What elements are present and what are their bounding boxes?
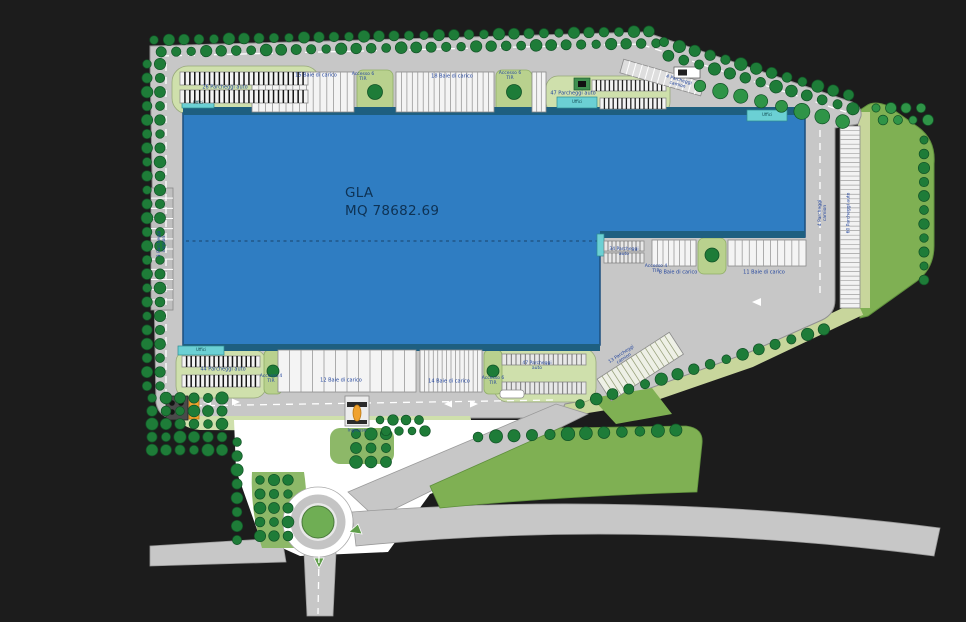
parking-44-row-b bbox=[182, 375, 260, 387]
truck-gate-sign bbox=[674, 67, 700, 78]
tree-icon bbox=[584, 27, 595, 38]
tree-icon bbox=[142, 227, 152, 237]
truck-icon bbox=[678, 70, 687, 76]
tree-icon bbox=[161, 432, 170, 441]
tree-icon bbox=[901, 103, 911, 113]
tree-icon bbox=[155, 143, 165, 153]
tree-icon bbox=[395, 427, 404, 436]
tree-icon bbox=[920, 234, 929, 243]
tree-icon bbox=[388, 415, 399, 426]
tree-icon bbox=[175, 445, 185, 455]
tree-icon bbox=[381, 457, 392, 468]
tree-icon bbox=[670, 424, 683, 437]
tree-icon bbox=[203, 393, 212, 402]
tree-icon bbox=[231, 464, 243, 476]
tree-icon bbox=[420, 426, 431, 437]
tree-icon bbox=[233, 438, 242, 447]
tree-icon bbox=[254, 33, 264, 43]
tree-icon bbox=[203, 432, 214, 443]
tree-icon bbox=[350, 456, 363, 469]
tree-icon bbox=[479, 30, 488, 39]
tree-icon bbox=[366, 43, 376, 53]
tree-icon bbox=[146, 418, 158, 430]
tree-icon bbox=[176, 407, 185, 416]
tree-icon bbox=[142, 143, 153, 154]
tree-icon bbox=[284, 490, 293, 499]
tree-icon bbox=[420, 31, 429, 40]
tree-icon bbox=[188, 405, 200, 417]
tree-icon bbox=[217, 432, 227, 442]
tree-icon bbox=[187, 47, 196, 56]
tree-icon bbox=[546, 39, 557, 50]
tree-icon bbox=[143, 312, 152, 321]
tree-icon bbox=[464, 30, 474, 40]
main-gate bbox=[345, 396, 369, 426]
stripes-bg bbox=[600, 98, 666, 109]
tree-icon bbox=[161, 445, 172, 456]
tree-icon bbox=[283, 475, 294, 486]
tree-icon bbox=[486, 41, 497, 52]
tree-icon bbox=[216, 392, 228, 404]
stripes-bg bbox=[532, 72, 546, 112]
tree-icon bbox=[382, 43, 391, 52]
barrier-icon bbox=[353, 405, 361, 421]
tree-icon bbox=[141, 338, 153, 350]
tree-icon bbox=[247, 46, 256, 55]
gate-box-glyph bbox=[578, 81, 586, 87]
tree-icon bbox=[329, 32, 339, 42]
tree-icon bbox=[256, 476, 265, 485]
tree-icon bbox=[231, 492, 243, 504]
dock-row-small-top bbox=[532, 72, 546, 112]
parking-47-top-row-b bbox=[600, 98, 666, 109]
tree-icon bbox=[155, 115, 166, 126]
tree-icon bbox=[155, 73, 164, 82]
label-parking-26: 26 Parcheggi auto bbox=[202, 85, 247, 91]
tree-icon bbox=[155, 339, 166, 350]
building-label-area: MQ 78682.69 bbox=[345, 202, 439, 220]
tree-icon bbox=[204, 420, 213, 429]
label-dock-14: 14 Baie di carico bbox=[428, 379, 470, 385]
canopy-south-east bbox=[600, 231, 805, 238]
tree-icon bbox=[141, 212, 153, 224]
tree-icon bbox=[408, 427, 416, 435]
tree-icon bbox=[156, 102, 165, 111]
tree-icon bbox=[441, 42, 451, 52]
tree-icon bbox=[449, 29, 460, 40]
tree-icon bbox=[365, 428, 377, 440]
tree-icon bbox=[231, 46, 241, 56]
tree-icon bbox=[298, 32, 310, 44]
tree-icon bbox=[203, 406, 214, 417]
office-block-5 bbox=[597, 234, 604, 256]
tree-icon bbox=[142, 381, 151, 390]
tree-icon bbox=[373, 30, 384, 41]
tree-icon bbox=[179, 34, 190, 45]
tree-icon bbox=[916, 103, 925, 112]
tree-icon bbox=[291, 44, 301, 54]
tree-icon bbox=[561, 40, 571, 50]
tree-icon bbox=[202, 444, 214, 456]
tree-icon bbox=[142, 101, 152, 111]
tree-icon bbox=[223, 33, 235, 45]
tree-icon bbox=[923, 115, 934, 126]
tree-icon bbox=[415, 416, 424, 425]
tree-icon bbox=[473, 432, 483, 442]
tree-icon bbox=[651, 424, 665, 438]
tree-icon bbox=[919, 191, 930, 202]
tree-icon bbox=[175, 419, 186, 430]
tree-icon bbox=[260, 44, 272, 56]
label-uffici-4: Uffici bbox=[196, 348, 206, 352]
tree-icon bbox=[155, 269, 165, 279]
tree-icon bbox=[539, 28, 549, 38]
tree-icon bbox=[886, 103, 897, 114]
tree-icon bbox=[351, 43, 362, 54]
tree-icon bbox=[306, 44, 316, 54]
tree-icon bbox=[155, 367, 166, 378]
tree-icon bbox=[142, 269, 153, 280]
label-uffici-1: Uffici bbox=[193, 101, 203, 105]
tree-icon bbox=[470, 41, 482, 53]
tree-icon bbox=[147, 406, 158, 417]
tree-icon bbox=[705, 248, 719, 262]
tree-icon bbox=[232, 507, 242, 517]
road-sign bbox=[500, 390, 524, 398]
tree-icon bbox=[404, 31, 414, 41]
tree-icon bbox=[156, 382, 165, 391]
tree-icon bbox=[171, 47, 181, 57]
tree-icon bbox=[314, 32, 325, 43]
tree-icon bbox=[579, 427, 592, 440]
tree-icon bbox=[894, 116, 903, 125]
tree-icon bbox=[507, 85, 522, 100]
tree-icon bbox=[254, 502, 266, 514]
tree-icon bbox=[508, 28, 519, 39]
tree-icon bbox=[285, 33, 294, 42]
tree-icon bbox=[283, 531, 293, 541]
tree-icon bbox=[150, 36, 159, 45]
site-plan: 26 Parcheggi auto 15 Baie di carico Acce… bbox=[0, 0, 966, 622]
tree-icon bbox=[188, 431, 199, 442]
tree-icon bbox=[255, 517, 265, 527]
tree-icon bbox=[146, 444, 158, 456]
gate-box-top bbox=[574, 78, 590, 90]
tree-icon bbox=[628, 26, 640, 38]
label-ingresso: Ingresso bbox=[348, 430, 367, 435]
tree-icon bbox=[919, 219, 930, 230]
tree-icon bbox=[141, 366, 152, 377]
tree-icon bbox=[154, 282, 166, 294]
tree-icon bbox=[389, 31, 399, 41]
tree-icon bbox=[919, 177, 928, 186]
parking-26-row-a bbox=[180, 72, 308, 85]
label-access-6-tir-2: Accesso 6 TIR bbox=[495, 71, 525, 81]
tree-icon bbox=[209, 34, 218, 43]
tree-icon bbox=[530, 39, 542, 51]
tree-icon bbox=[143, 186, 152, 195]
tree-icon bbox=[635, 426, 645, 436]
tree-icon bbox=[599, 27, 609, 37]
tree-icon bbox=[489, 430, 503, 444]
label-dock-8: 8 Baie di carico bbox=[659, 270, 698, 276]
tree-icon bbox=[141, 86, 153, 98]
tree-icon bbox=[232, 535, 241, 544]
tree-icon bbox=[155, 171, 165, 181]
tree-icon bbox=[231, 520, 242, 531]
tree-icon bbox=[381, 426, 390, 435]
tree-icon bbox=[878, 115, 888, 125]
tree-icon bbox=[154, 58, 165, 69]
tree-icon bbox=[148, 394, 157, 403]
stripes-bg bbox=[182, 375, 260, 387]
tree-cluster-roundabout-west bbox=[254, 474, 294, 541]
tree-icon bbox=[501, 41, 511, 51]
label-access-4-tir-bottom: Accesso 4 TIR bbox=[256, 374, 286, 384]
tree-icon bbox=[276, 44, 287, 55]
tree-icon bbox=[918, 162, 929, 173]
tree-icon bbox=[368, 85, 383, 100]
tree-icon bbox=[156, 47, 166, 57]
label-parking-4-camion-right: 4 Parcheggi camion bbox=[818, 191, 828, 235]
tree-icon bbox=[376, 416, 384, 424]
tree-icon bbox=[919, 275, 929, 285]
tree-icon bbox=[401, 415, 411, 425]
tree-icon bbox=[216, 444, 227, 455]
label-parking-34: 34 Parcheggi auto bbox=[609, 247, 639, 257]
tree-icon bbox=[161, 406, 171, 416]
tree-icon bbox=[269, 531, 280, 542]
tree-icon bbox=[143, 60, 152, 69]
tree-icon bbox=[524, 28, 534, 38]
tree-icon bbox=[238, 33, 249, 44]
tree-icon bbox=[255, 489, 265, 499]
tree-icon bbox=[605, 38, 617, 50]
tree-icon bbox=[643, 26, 654, 37]
tree-icon bbox=[142, 129, 151, 138]
tree-icon bbox=[920, 206, 929, 215]
label-uffici-2: Uffici bbox=[572, 100, 582, 104]
tree-icon bbox=[143, 158, 152, 167]
label-dock-15: 15 Baie di carico bbox=[295, 73, 337, 79]
label-parking-60: 60 Parcheggi auto bbox=[846, 191, 851, 235]
label-dock-12: 12 Baie di carico bbox=[320, 378, 362, 384]
tree-icon bbox=[232, 479, 242, 489]
tree-icon bbox=[160, 418, 171, 429]
tree-icon bbox=[411, 42, 422, 53]
tree-icon bbox=[395, 42, 407, 54]
tree-icon bbox=[156, 130, 165, 139]
tree-icon bbox=[493, 28, 505, 40]
tree-icon bbox=[155, 325, 164, 334]
label-access-6-tir-1: Accesso 6 TIR bbox=[348, 72, 378, 82]
tree-icon bbox=[142, 171, 153, 182]
tree-icon bbox=[576, 40, 586, 50]
tree-icon bbox=[217, 406, 227, 416]
tree-icon bbox=[216, 45, 227, 56]
tree-icon bbox=[155, 87, 166, 98]
tree-icon bbox=[282, 516, 294, 528]
tree-icon bbox=[268, 474, 279, 485]
tree-icon bbox=[141, 240, 152, 251]
tree-icon bbox=[598, 427, 610, 439]
dock-row-11 bbox=[728, 240, 806, 266]
tree-icon bbox=[156, 354, 165, 363]
tree-icon bbox=[920, 262, 928, 270]
tree-icon bbox=[216, 418, 228, 430]
tree-icon bbox=[592, 40, 601, 49]
tree-icon bbox=[358, 30, 370, 42]
label-access-6-tir-bottom: Accesso 6 TIR bbox=[478, 376, 508, 386]
roundabout-center-green bbox=[302, 506, 334, 538]
label-dock-18: 18 Baie di carico bbox=[431, 74, 473, 80]
tree-icon bbox=[142, 297, 153, 308]
tree-icon bbox=[142, 73, 152, 83]
tree-icon bbox=[160, 392, 172, 404]
tree-icon bbox=[194, 34, 204, 44]
tree-icon bbox=[616, 426, 627, 437]
tree-icon bbox=[147, 432, 157, 442]
tree-icon bbox=[189, 445, 198, 454]
tree-icon bbox=[526, 429, 538, 441]
label-parking-3-camion: 3 Parcheggi camion bbox=[157, 222, 167, 266]
dock-row-8 bbox=[652, 240, 696, 266]
tree-icon bbox=[909, 116, 917, 124]
tree-icon bbox=[142, 255, 151, 264]
tree-icon bbox=[365, 456, 377, 468]
tree-icon bbox=[920, 136, 928, 144]
tree-icon bbox=[155, 297, 165, 307]
tree-icon bbox=[142, 353, 152, 363]
tree-icon bbox=[154, 310, 165, 321]
tree-icon bbox=[269, 33, 279, 43]
tree-icon bbox=[508, 429, 521, 442]
building-label: GLA MQ 78682.69 bbox=[345, 184, 439, 220]
label-uffici-3: Uffici bbox=[762, 113, 772, 117]
tree-icon bbox=[568, 27, 580, 39]
label-parking-47-top: 47 Parcheggi auto bbox=[550, 91, 595, 97]
tree-icon bbox=[636, 39, 646, 49]
tree-icon bbox=[381, 443, 390, 452]
label-parking-47-bottom: 47 Parcheggi auto bbox=[519, 361, 555, 371]
tree-icon bbox=[189, 393, 199, 403]
tree-icon bbox=[555, 29, 564, 38]
tree-icon bbox=[344, 32, 353, 41]
tree-icon bbox=[154, 156, 166, 168]
tree-icon bbox=[433, 29, 445, 41]
tree-icon bbox=[872, 104, 880, 112]
dock-row-12 bbox=[278, 350, 416, 392]
tree-icon bbox=[283, 503, 293, 513]
tree-icon bbox=[189, 419, 199, 429]
tree-icon bbox=[270, 518, 279, 527]
tree-icon bbox=[269, 503, 280, 514]
tree-icon bbox=[517, 41, 526, 50]
tree-icon bbox=[322, 45, 331, 54]
tree-icon bbox=[621, 38, 632, 49]
tree-icon bbox=[174, 431, 186, 443]
tree-icon bbox=[426, 42, 436, 52]
tree-icon bbox=[351, 443, 362, 454]
site-plan-drawing bbox=[0, 0, 966, 622]
tree-icon bbox=[232, 451, 243, 462]
tree-icon bbox=[269, 489, 278, 498]
tree-icon bbox=[155, 199, 164, 208]
building-label-gla: GLA bbox=[345, 184, 439, 202]
tree-icon bbox=[457, 42, 466, 51]
tree-icon bbox=[919, 149, 929, 159]
label-dock-11: 11 Baie di carico bbox=[743, 270, 785, 276]
tree-icon bbox=[919, 247, 929, 257]
tree-icon bbox=[142, 325, 152, 335]
tree-icon bbox=[141, 114, 152, 125]
tree-icon bbox=[154, 184, 165, 195]
tree-icon bbox=[335, 43, 347, 55]
tree-icon bbox=[545, 429, 556, 440]
tree-icon bbox=[614, 27, 623, 36]
tree-icon bbox=[200, 45, 212, 57]
dock-row-14 bbox=[420, 350, 482, 392]
tree-icon bbox=[163, 34, 175, 46]
tree-icon bbox=[366, 443, 376, 453]
tree-icon bbox=[143, 284, 152, 293]
tree-icon bbox=[142, 199, 152, 209]
tree-icon bbox=[254, 530, 265, 541]
tree-icon bbox=[561, 427, 575, 441]
tree-icon bbox=[175, 393, 186, 404]
label-parking-44: 44 Parcheggi auto bbox=[200, 367, 245, 373]
stripes-bg bbox=[728, 240, 806, 266]
